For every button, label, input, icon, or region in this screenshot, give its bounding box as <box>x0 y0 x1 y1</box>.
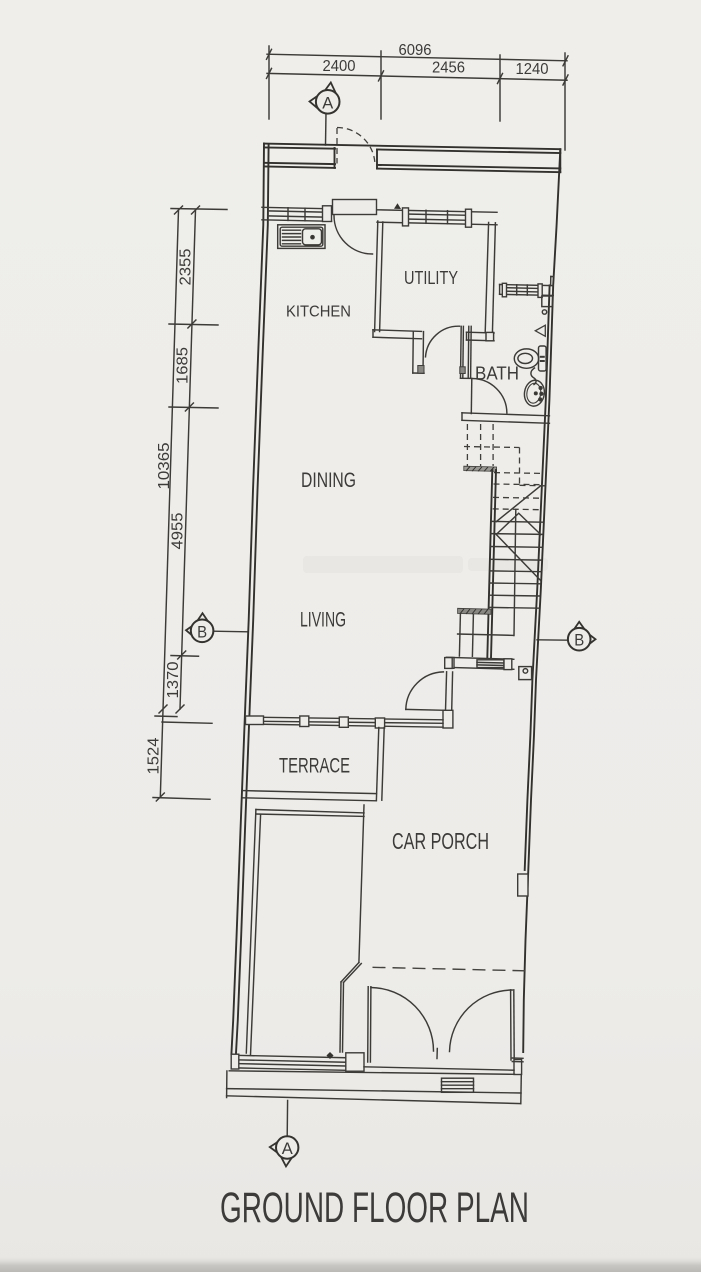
svg-text:LIVING: LIVING <box>300 609 346 632</box>
svg-text:CAR PORCH: CAR PORCH <box>392 828 489 854</box>
svg-text:1370: 1370 <box>165 661 182 698</box>
svg-text:1240: 1240 <box>516 61 549 78</box>
svg-text:KITCHEN: KITCHEN <box>286 304 351 321</box>
svg-text:DINING: DINING <box>301 469 356 492</box>
svg-text:2456: 2456 <box>432 60 465 77</box>
svg-text:1524: 1524 <box>146 737 163 774</box>
svg-text:4955: 4955 <box>170 513 187 550</box>
svg-text:2400: 2400 <box>323 58 356 75</box>
svg-text:A: A <box>282 1139 294 1158</box>
svg-text:A: A <box>322 93 334 112</box>
svg-text:BATH: BATH <box>475 363 519 384</box>
svg-text:10365: 10365 <box>156 443 173 490</box>
svg-text:TERRACE: TERRACE <box>279 755 350 778</box>
svg-text:1685: 1685 <box>175 347 192 384</box>
svg-text:B: B <box>197 622 207 641</box>
svg-text:2355: 2355 <box>178 249 195 286</box>
svg-text:6096: 6096 <box>399 42 432 59</box>
svg-text:B: B <box>574 631 584 650</box>
svg-text:GROUND FLOOR PLAN: GROUND FLOOR PLAN <box>220 1184 529 1232</box>
svg-text:UTILITY: UTILITY <box>404 267 458 288</box>
